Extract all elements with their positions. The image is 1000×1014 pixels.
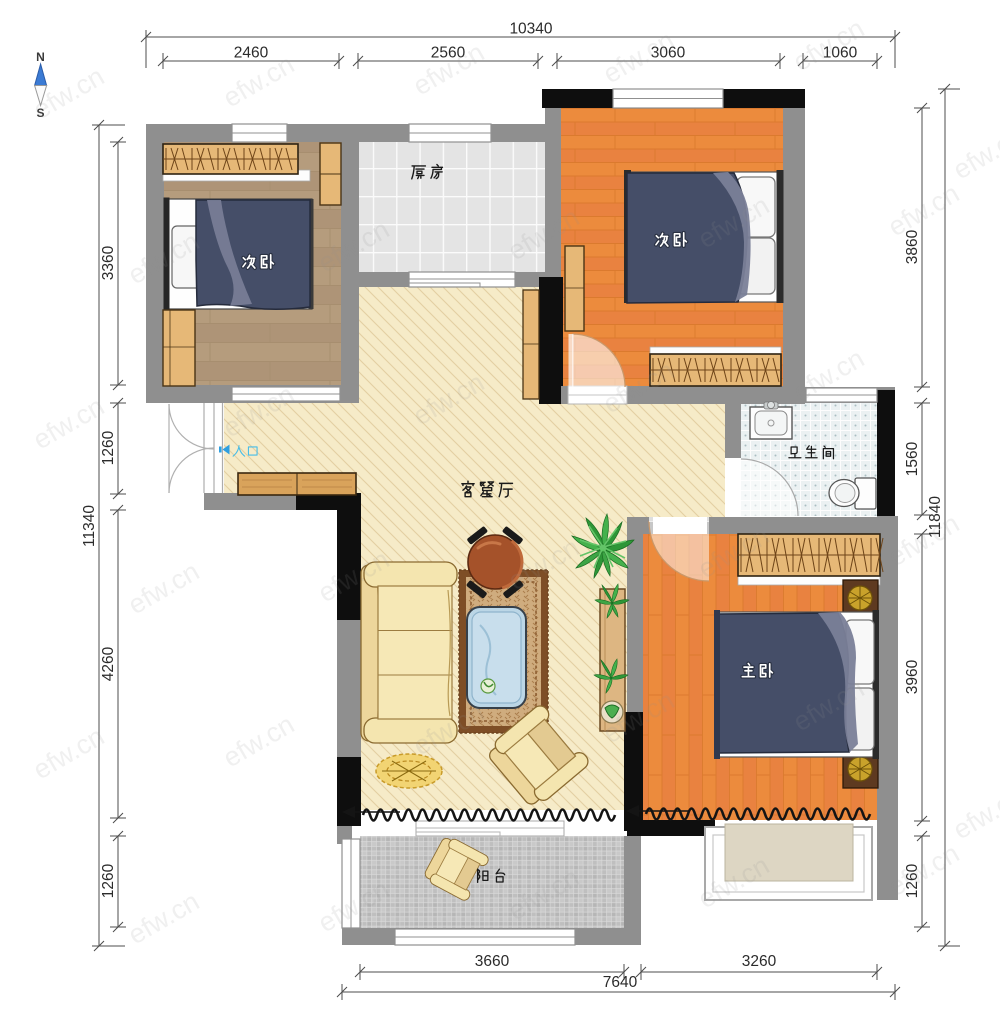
svg-text:3960: 3960 (904, 659, 921, 694)
svg-text:efw.cn: efw.cn (28, 721, 109, 785)
svg-text:3660: 3660 (475, 953, 510, 970)
svg-text:3260: 3260 (742, 953, 777, 970)
svg-text:efw.cn: efw.cn (28, 391, 109, 455)
svg-text:efw.cn: efw.cn (123, 886, 204, 950)
svg-text:efw.cn: efw.cn (883, 178, 964, 242)
svg-text:1260: 1260 (100, 430, 117, 465)
svg-text:efw.cn: efw.cn (948, 781, 1000, 845)
svg-text:10340: 10340 (509, 21, 552, 38)
svg-text:1260: 1260 (100, 863, 117, 898)
svg-text:efw.cn: efw.cn (598, 25, 679, 89)
svg-text:efw.cn: efw.cn (123, 556, 204, 620)
svg-text:7640: 7640 (603, 974, 638, 991)
svg-text:efw.cn: efw.cn (788, 13, 869, 77)
svg-text:N: N (36, 50, 45, 64)
svg-text:4260: 4260 (100, 646, 117, 681)
svg-text:efw.cn: efw.cn (948, 121, 1000, 185)
svg-text:11340: 11340 (81, 505, 98, 547)
svg-text:2460: 2460 (234, 45, 269, 62)
svg-text:3360: 3360 (100, 245, 117, 280)
svg-text:efw.cn: efw.cn (218, 709, 299, 773)
svg-text:1560: 1560 (904, 441, 921, 476)
